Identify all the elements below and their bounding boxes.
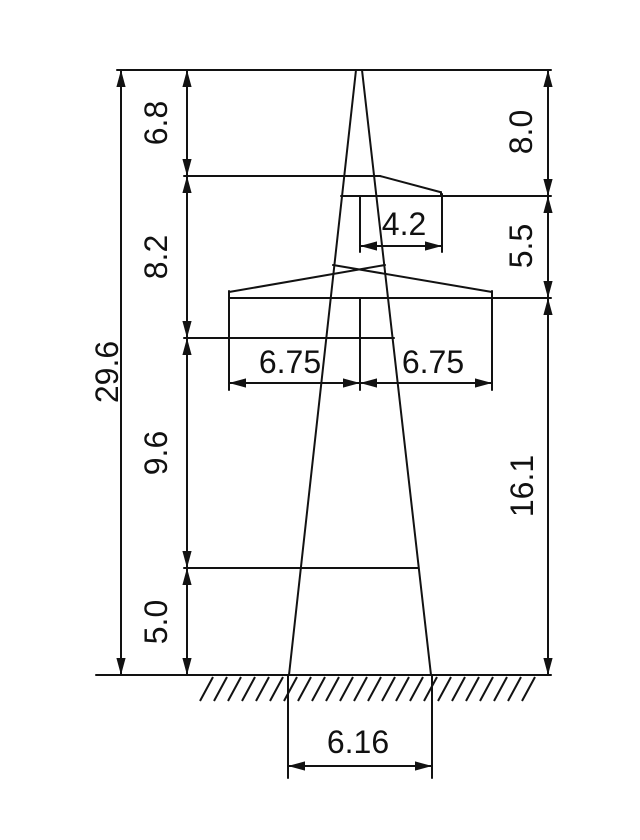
dim-label-seg-5-5: 5.5: [503, 224, 539, 268]
dim-label-upper-arm: 4.2: [382, 206, 426, 242]
ground-hatch-line: [438, 677, 451, 701]
ground-hatch-line: [228, 677, 241, 701]
ground-hatch-line: [424, 677, 437, 701]
dim-label-seg-8-2: 8.2: [138, 235, 174, 279]
ground-hatch-line: [214, 677, 227, 701]
ground-hatch-line: [452, 677, 465, 701]
ground-hatch-line: [242, 677, 255, 701]
dimension-arrowhead: [343, 378, 360, 387]
dimension-arrowhead: [182, 321, 191, 338]
ground-hatch-line: [396, 677, 409, 701]
dim-label-seg-9-6: 9.6: [138, 431, 174, 475]
dimension-arrowhead: [543, 179, 552, 196]
dimension-arrowhead: [543, 298, 552, 315]
ground-hatch-line: [312, 677, 325, 701]
ground-hatch-line: [340, 677, 353, 701]
dim-label-seg-16-1: 16.1: [504, 455, 540, 517]
dimension-arrowhead: [182, 568, 191, 585]
dimension-arrowhead: [229, 378, 246, 387]
dimension-arrowhead: [360, 378, 377, 387]
tower-dimension-diagram: 29.66.88.29.65.08.05.516.14.26.756.756.1…: [0, 0, 640, 840]
ground-hatch-line: [368, 677, 381, 701]
technical-drawing-page: 29.66.88.29.65.08.05.516.14.26.756.756.1…: [0, 0, 640, 840]
ground-hatch-line: [508, 677, 521, 701]
ground-hatch-line: [326, 677, 339, 701]
ground-hatch-line: [410, 677, 423, 701]
ground-hatch-line: [256, 677, 269, 701]
dim-label-total-height: 29.6: [89, 341, 125, 403]
upper-arm-slope: [380, 176, 440, 192]
dim-label-seg-8-0: 8.0: [503, 110, 539, 154]
dimension-arrowhead: [415, 761, 432, 770]
dim-label-lower-arm-right: 6.75: [402, 344, 464, 380]
ground-hatch-line: [298, 677, 311, 701]
dimension-arrowhead: [360, 241, 377, 250]
ground-hatch-line: [200, 677, 213, 701]
dimension-arrowhead: [182, 338, 191, 355]
dimension-arrowhead: [288, 761, 305, 770]
ground-hatch-line: [354, 677, 367, 701]
dimension-arrowhead: [543, 658, 552, 675]
dimension-arrowhead: [543, 70, 552, 87]
dimension-arrowhead: [425, 241, 442, 250]
ground-hatch-line: [466, 677, 479, 701]
ground-hatch-line: [494, 677, 507, 701]
ground-hatch-line: [270, 677, 283, 701]
dimension-arrowhead: [182, 551, 191, 568]
dimension-arrowhead: [182, 658, 191, 675]
dimension-arrowhead: [182, 176, 191, 193]
ground-hatch-line: [522, 677, 535, 701]
ground-hatch-line: [480, 677, 493, 701]
dim-label-seg-5-0: 5.0: [138, 600, 174, 644]
dimension-arrowhead: [116, 70, 125, 87]
dim-label-seg-6-8: 6.8: [138, 101, 174, 145]
dimension-arrowhead: [182, 159, 191, 176]
dim-label-lower-arm-left: 6.75: [259, 344, 321, 380]
dim-label-base-width: 6.16: [327, 724, 389, 760]
dimension-arrowhead: [543, 281, 552, 298]
dimension-arrowhead: [543, 196, 552, 213]
lower-arm-roof-right: [333, 265, 492, 292]
dimension-arrowhead: [182, 70, 191, 87]
dimension-arrowhead: [116, 658, 125, 675]
dimension-arrowhead: [475, 378, 492, 387]
ground-hatch-line: [284, 677, 297, 701]
ground-hatch-line: [382, 677, 395, 701]
